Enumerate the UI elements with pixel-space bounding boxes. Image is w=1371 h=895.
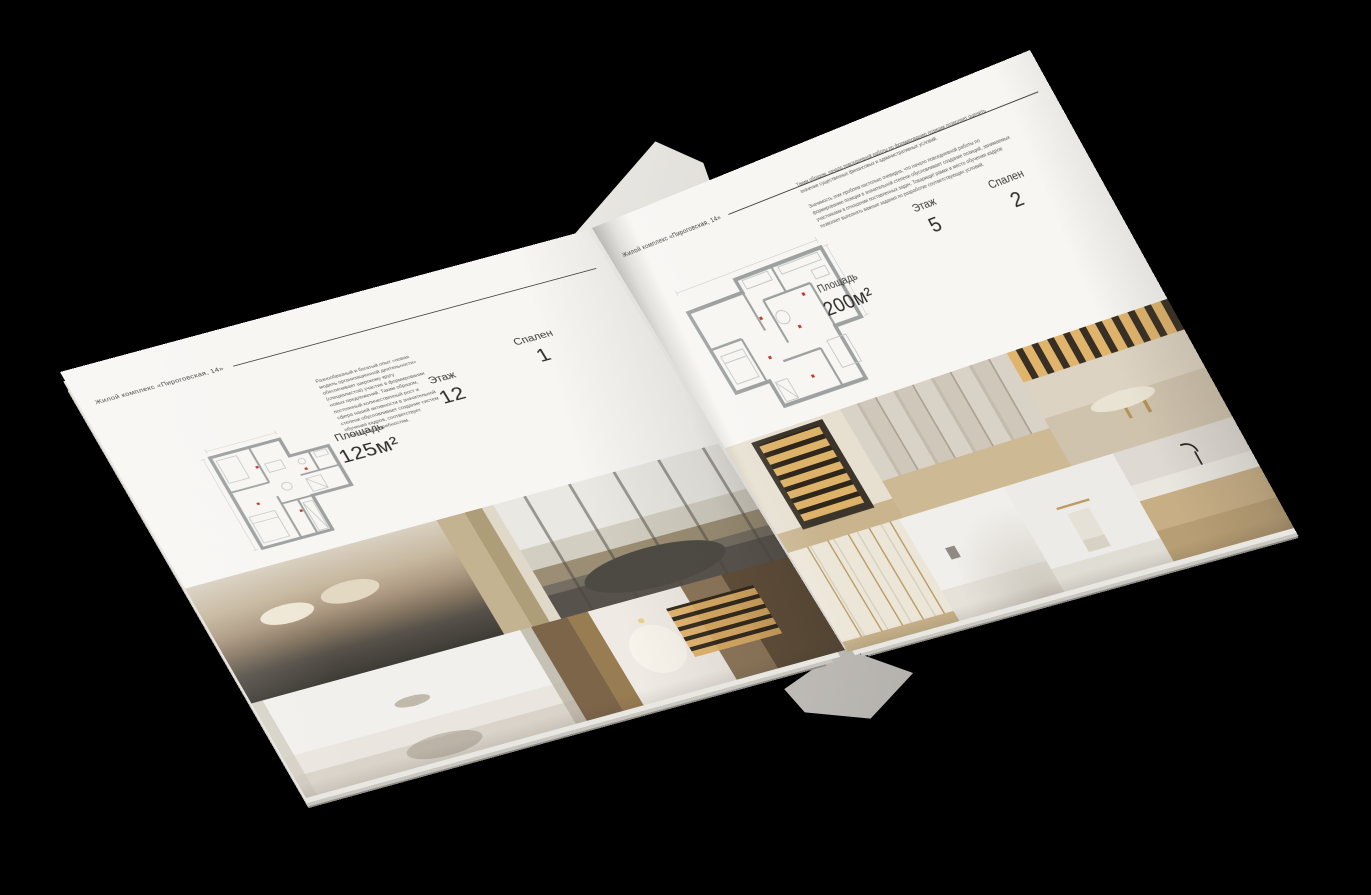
magazine-mockup-scene: Жилой комплекс «Пироговская, 14» <box>0 0 1371 895</box>
page-left-header-title: Жилой комплекс «Пироговская, 14» <box>93 365 225 406</box>
faucet-shape <box>1180 441 1199 456</box>
spec-bedrooms: Спален 1 <box>484 321 597 378</box>
page-right-header-title: Жилой комплекс «Пироговская, 14» <box>620 213 722 259</box>
